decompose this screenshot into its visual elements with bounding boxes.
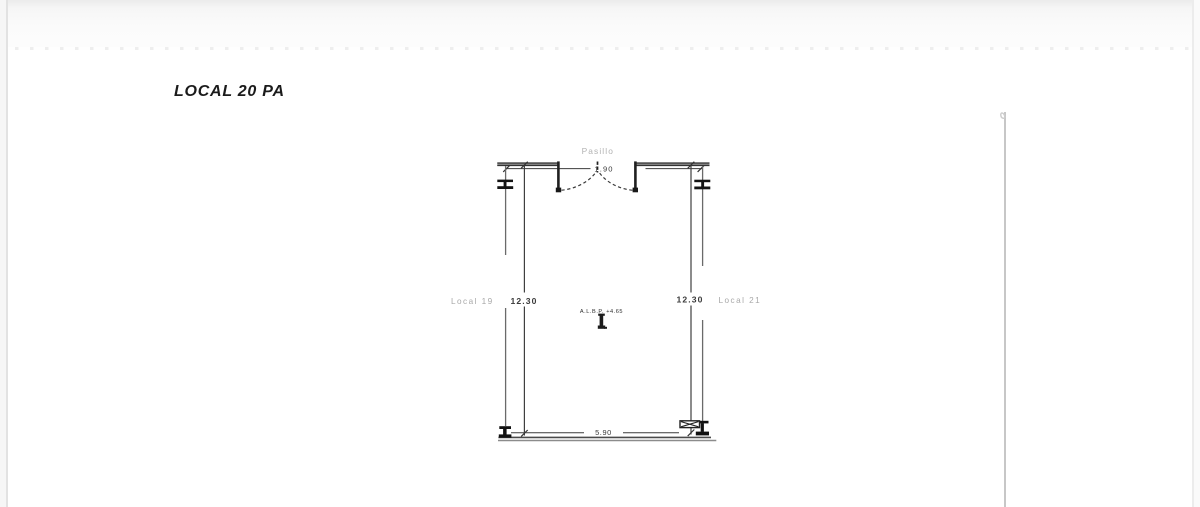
svg-text:12.30: 12.30 [676, 295, 703, 305]
svg-text:12.30: 12.30 [510, 296, 537, 306]
svg-text:Local 21: Local 21 [719, 296, 762, 305]
svg-text:Local 19: Local 19 [451, 297, 494, 306]
svg-text:Pasillo: Pasillo [582, 146, 614, 156]
svg-text:5.90: 5.90 [595, 428, 612, 437]
